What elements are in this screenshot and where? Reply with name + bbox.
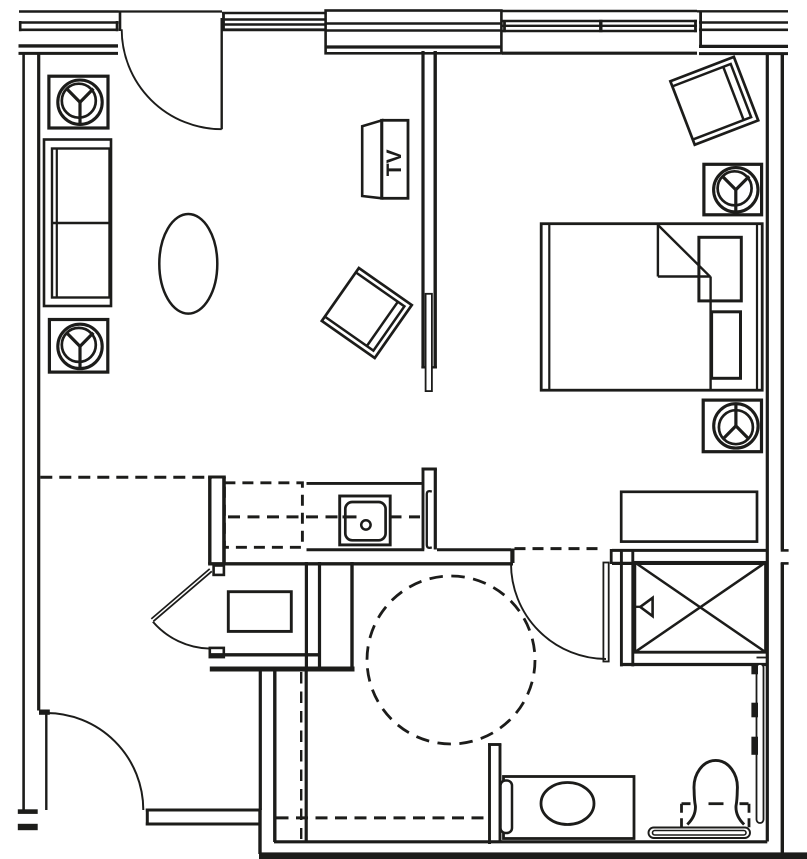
svg-text:TV: TV (383, 149, 406, 176)
